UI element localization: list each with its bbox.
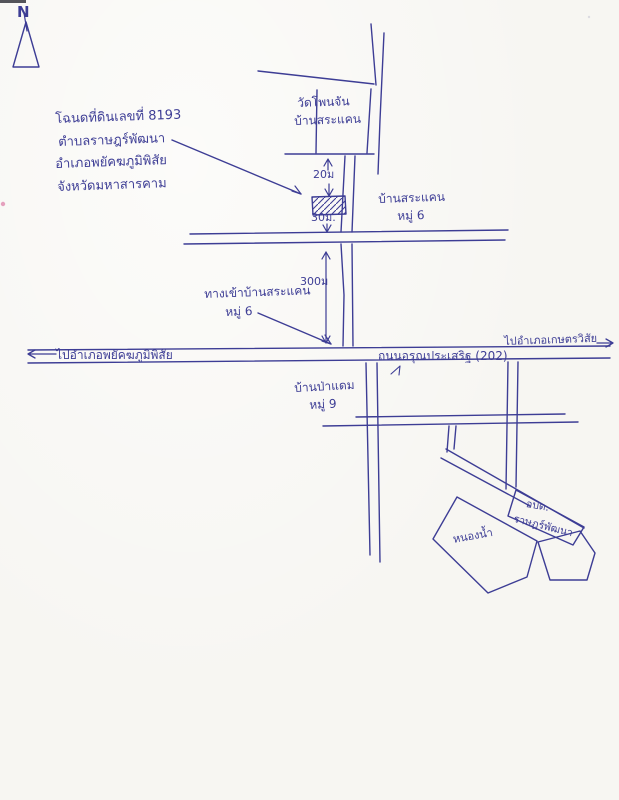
highway-west-destination-label: ไปอำเภอพยัคฆภูมิพิสัย	[56, 349, 173, 362]
road-middle-horizontal	[184, 230, 508, 244]
highway-name-label: ถนนอรุณประเสริฐ (202)	[378, 350, 508, 363]
dim-30m-arrow	[323, 224, 331, 232]
deed-callout-arrow	[172, 140, 301, 194]
road-south-vertical	[366, 363, 380, 562]
dim-300m-arrow	[322, 252, 330, 343]
village-road-vertical	[341, 156, 355, 346]
dim-20m-label: 20ม	[313, 169, 334, 181]
road-right-vertical	[506, 362, 518, 489]
village-moo6-label-line-1: บ้านสระแคน	[378, 191, 445, 207]
road-lower-horizontal	[323, 414, 578, 426]
village-moo6-label-line-2: หมู่ 6	[397, 209, 425, 223]
village-moo9-label-line-2: หมู่ 9	[309, 398, 337, 413]
temple-label: วัดโพนจัน	[297, 95, 350, 110]
road-diagonal	[441, 426, 584, 528]
dim-30m-label: 30ม.	[311, 212, 336, 224]
temple-village-label: บ้านสระแคน	[294, 113, 361, 129]
entrance-callout-arrow	[258, 313, 331, 344]
scan-artifacts	[0, 0, 590, 206]
north-arrow-icon	[13, 13, 39, 67]
entrance-note-line-2: หมู่ 6	[225, 305, 253, 319]
north-label: N	[17, 4, 30, 21]
pond-shape	[433, 497, 537, 593]
